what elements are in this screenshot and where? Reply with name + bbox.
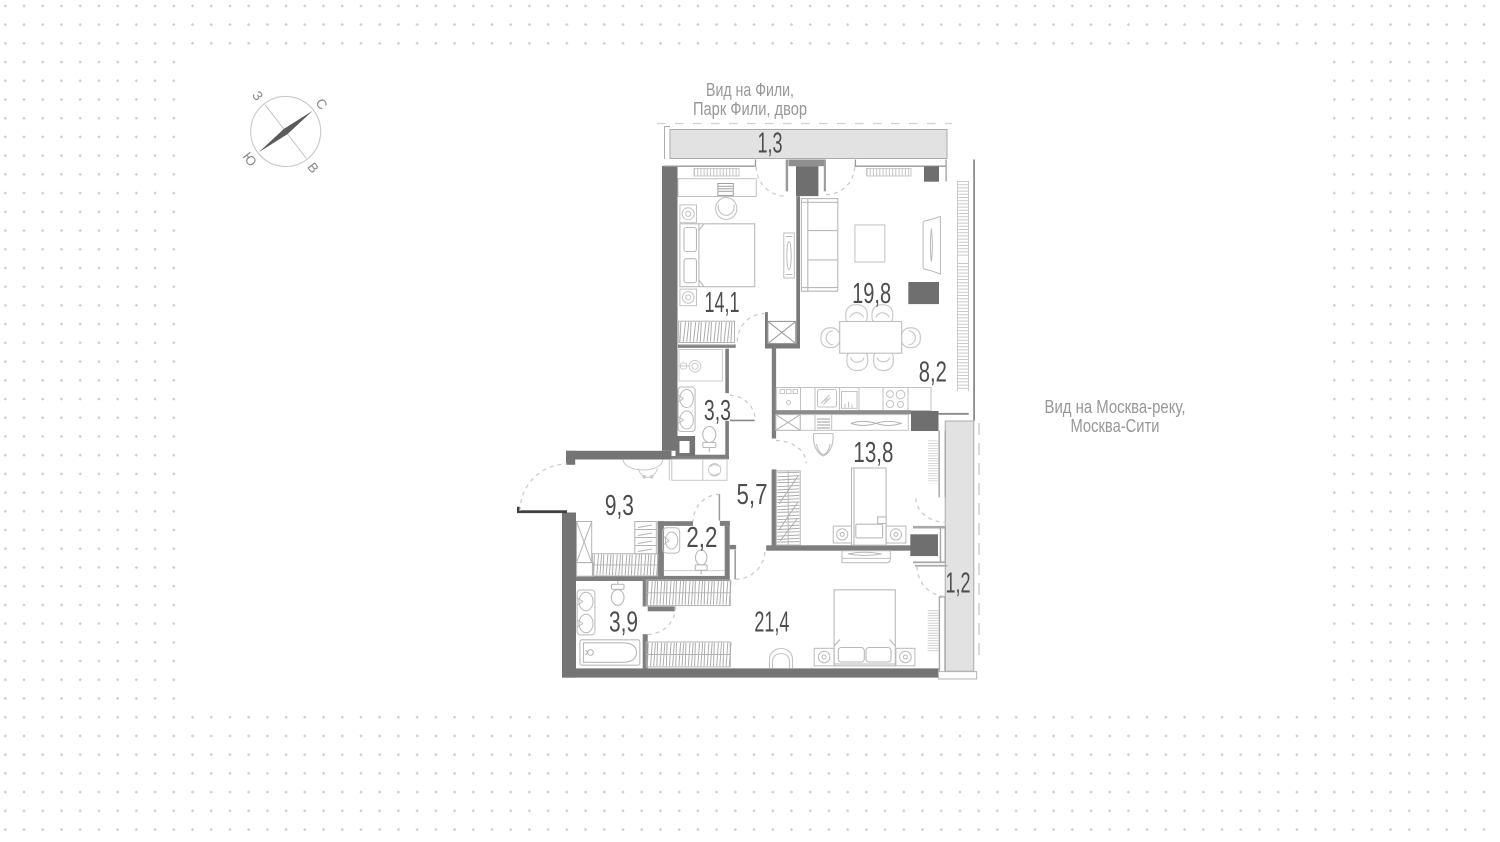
svg-text:В: В <box>304 160 321 176</box>
svg-text:2,2: 2,2 <box>686 522 717 554</box>
svg-text:1,3: 1,3 <box>758 128 783 160</box>
svg-text:Ю: Ю <box>240 149 260 169</box>
svg-text:9,3: 9,3 <box>605 490 634 522</box>
svg-text:8,2: 8,2 <box>919 357 947 389</box>
svg-text:З: З <box>249 88 266 104</box>
svg-text:13,8: 13,8 <box>853 437 893 469</box>
svg-text:1,2: 1,2 <box>946 568 971 600</box>
svg-text:С: С <box>312 96 330 113</box>
svg-text:5,7: 5,7 <box>737 479 768 511</box>
svg-text:19,8: 19,8 <box>852 278 891 310</box>
svg-text:Москва-Сити: Москва-Сити <box>1071 416 1160 436</box>
svg-text:21,4: 21,4 <box>754 607 789 639</box>
svg-text:3,9: 3,9 <box>609 607 638 639</box>
svg-text:Вид на Москва-реку,: Вид на Москва-реку, <box>1045 397 1186 417</box>
svg-text:14,1: 14,1 <box>705 287 740 319</box>
svg-text:Парк Фили, двор: Парк Фили, двор <box>693 99 807 119</box>
svg-text:Вид на Фили,: Вид на Фили, <box>706 80 794 100</box>
svg-text:3,3: 3,3 <box>704 395 731 427</box>
